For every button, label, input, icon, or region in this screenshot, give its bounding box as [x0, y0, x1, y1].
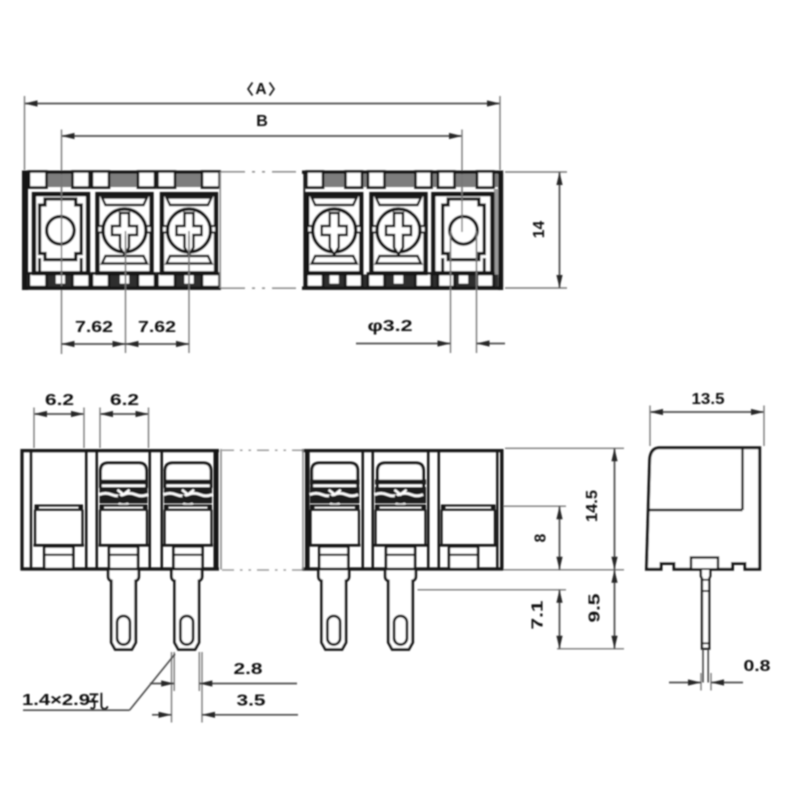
svg-text:φ3.2: φ3.2 — [368, 318, 413, 335]
svg-text:A: A — [255, 81, 266, 98]
svg-text:6.2: 6.2 — [110, 392, 139, 409]
svg-text:9.5: 9.5 — [587, 593, 604, 622]
svg-text:B: B — [256, 113, 268, 130]
svg-text:2.8: 2.8 — [234, 661, 263, 678]
svg-text:3.5: 3.5 — [237, 693, 266, 710]
svg-text:0.8: 0.8 — [744, 658, 771, 675]
svg-text:13.5: 13.5 — [692, 391, 725, 408]
svg-text:14.5: 14.5 — [584, 490, 601, 522]
svg-text:8: 8 — [533, 533, 550, 542]
svg-text:14: 14 — [531, 221, 548, 239]
svg-text:1.4×2.9: 1.4×2.9 — [22, 692, 90, 709]
svg-text:7.62: 7.62 — [138, 319, 176, 336]
svg-text:7.1: 7.1 — [530, 600, 547, 629]
svg-text:7.62: 7.62 — [75, 319, 113, 336]
svg-text:6.2: 6.2 — [45, 392, 74, 409]
